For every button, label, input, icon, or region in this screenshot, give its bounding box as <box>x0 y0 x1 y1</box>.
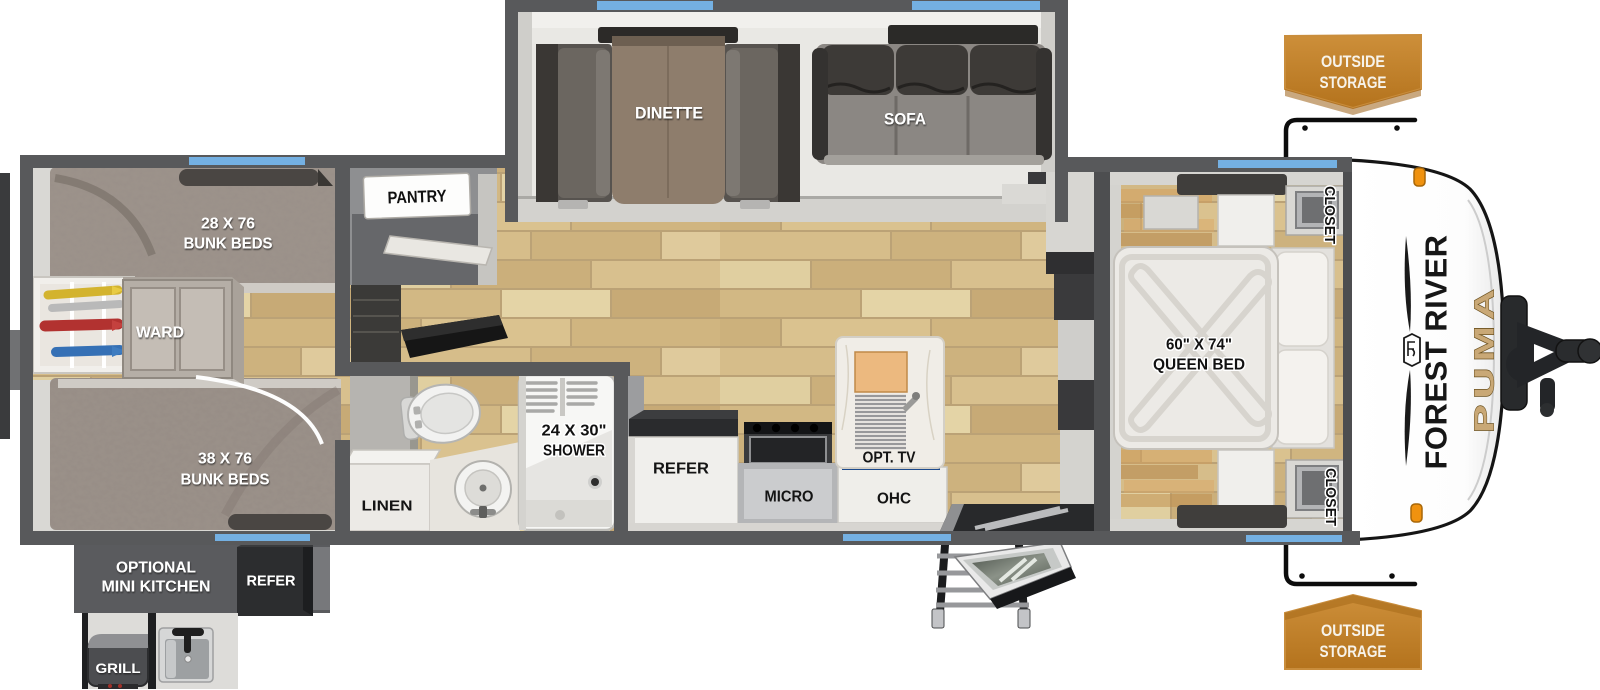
svg-text:60" X 74": 60" X 74" <box>1166 337 1232 354</box>
svg-text:BUNK BEDS: BUNK BEDS <box>181 472 270 489</box>
svg-text:SOFA: SOFA <box>884 110 926 129</box>
svg-text:REFER: REFER <box>247 573 296 590</box>
svg-text:DINETTE: DINETTE <box>635 104 703 123</box>
svg-text:38 X 76: 38 X 76 <box>198 451 252 468</box>
svg-text:SHOWER: SHOWER <box>543 443 605 460</box>
svg-text:MINI KITCHEN: MINI KITCHEN <box>102 579 211 596</box>
svg-text:OHC: OHC <box>877 491 911 508</box>
svg-text:BUNK BEDS: BUNK BEDS <box>184 236 273 253</box>
svg-text:PANTRY: PANTRY <box>387 186 447 207</box>
svg-text:STORAGE: STORAGE <box>1320 74 1387 92</box>
svg-text:GRILL: GRILL <box>96 660 141 676</box>
svg-text:CLOSET: CLOSET <box>1322 468 1338 526</box>
svg-text:OPTIONAL: OPTIONAL <box>116 560 196 577</box>
svg-text:OUTSIDE: OUTSIDE <box>1321 622 1385 640</box>
svg-text:LINEN: LINEN <box>362 498 413 515</box>
svg-text:28 X 76: 28 X 76 <box>201 216 255 233</box>
svg-text:STORAGE: STORAGE <box>1320 643 1387 661</box>
svg-text:WARD: WARD <box>136 325 184 342</box>
svg-text:FOREST RIVER: FOREST RIVER <box>1419 235 1454 470</box>
svg-text:24 X 30": 24 X 30" <box>542 423 607 440</box>
svg-text:CLOSET: CLOSET <box>1321 186 1337 244</box>
svg-text:REFER: REFER <box>653 461 709 478</box>
svg-text:PUMA: PUMA <box>1469 283 1500 433</box>
svg-text:MICRO: MICRO <box>765 489 814 506</box>
svg-text:OUTSIDE: OUTSIDE <box>1321 53 1385 71</box>
svg-text:QUEEN BED: QUEEN BED <box>1153 357 1245 374</box>
svg-text:OPT. TV: OPT. TV <box>863 450 917 467</box>
